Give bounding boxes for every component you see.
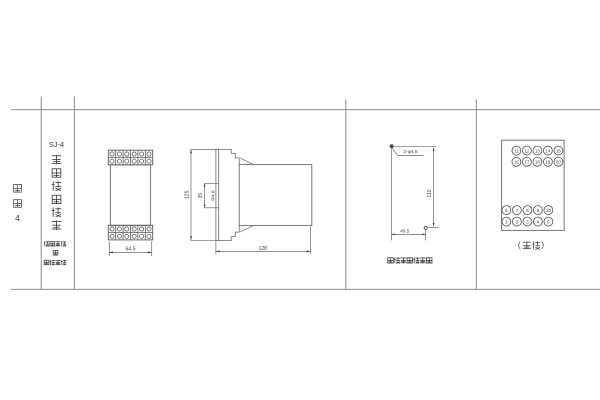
svg-text:64.5: 64.5 xyxy=(125,247,135,253)
svg-text:7: 7 xyxy=(516,208,519,213)
svg-text:2-φ4.5: 2-φ4.5 xyxy=(403,149,417,155)
svg-text:12: 12 xyxy=(524,148,530,153)
svg-text:6: 6 xyxy=(505,208,508,213)
svg-text:19: 19 xyxy=(545,160,551,165)
svg-text:11: 11 xyxy=(514,148,519,153)
svg-text:18: 18 xyxy=(535,160,541,165)
svg-text:15: 15 xyxy=(556,148,562,153)
svg-text:5: 5 xyxy=(547,219,550,224)
svg-text:110: 110 xyxy=(427,189,433,197)
svg-text:17: 17 xyxy=(524,160,530,165)
svg-text:9: 9 xyxy=(537,208,540,213)
svg-text:48.5: 48.5 xyxy=(400,228,410,234)
svg-text:Φ4.8: Φ4.8 xyxy=(211,190,217,201)
svg-text:128: 128 xyxy=(259,246,268,252)
svg-text:2: 2 xyxy=(516,219,519,224)
svg-text:3: 3 xyxy=(526,219,529,224)
svg-text:): ) xyxy=(541,241,544,250)
svg-text:8: 8 xyxy=(526,208,529,213)
svg-text:4: 4 xyxy=(15,213,20,223)
svg-text:35: 35 xyxy=(198,193,204,199)
svg-text:(: ( xyxy=(518,241,521,250)
svg-text:13: 13 xyxy=(535,148,541,153)
svg-text:14: 14 xyxy=(545,148,551,153)
svg-text:125: 125 xyxy=(184,190,190,199)
svg-text:10: 10 xyxy=(546,208,552,213)
svg-text:20: 20 xyxy=(556,160,562,165)
svg-text:SJ-4: SJ-4 xyxy=(49,140,64,149)
svg-text:1: 1 xyxy=(505,219,508,224)
svg-text:16: 16 xyxy=(514,160,520,165)
svg-text:4: 4 xyxy=(537,219,540,224)
